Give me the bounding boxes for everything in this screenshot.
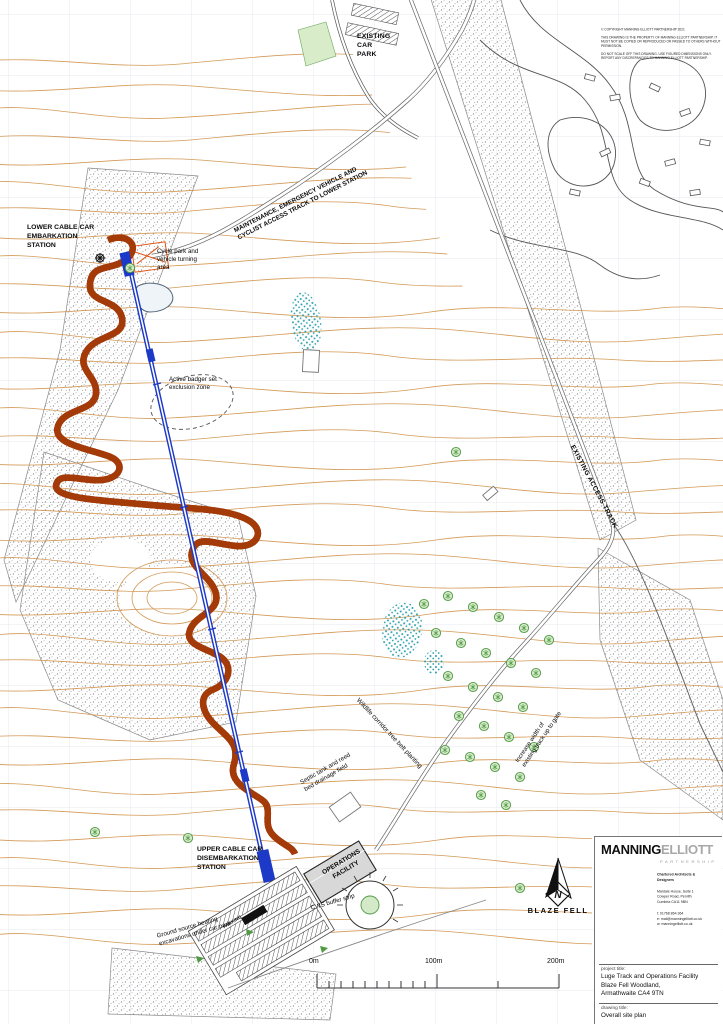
project-title: Luge Track and Operations Facility Blaze… bbox=[601, 973, 718, 999]
north-arrow: N bbox=[530, 856, 586, 908]
clearing bbox=[90, 538, 150, 582]
scale-bar-ticks bbox=[303, 970, 589, 992]
note-no-scale: Do not scale off this drawing. Use figur… bbox=[601, 52, 721, 61]
firm-name-elliott: ELLIOTT bbox=[661, 842, 713, 857]
svg-text:N: N bbox=[554, 890, 562, 901]
firm-details: Chartered Architects & Designers Mardale… bbox=[657, 867, 723, 932]
firm-logo: MANNINGELLIOTT bbox=[601, 841, 718, 859]
firm-contact: t: 01768 864 364 e: mail@manningelliott.… bbox=[657, 911, 723, 926]
note-copyright: © Copyright Manning Elliott Partnership … bbox=[601, 28, 721, 33]
note-property: This drawing is the property of Manning … bbox=[601, 36, 721, 50]
scale-two-hundred: 200m bbox=[547, 958, 565, 965]
lift-wheel-symbol bbox=[95, 253, 105, 263]
label-existing-car-park: EXISTING CAR PARK bbox=[357, 33, 390, 59]
firm-name-manning: MANNING bbox=[601, 842, 661, 857]
label-cycle-park: Cycle park and vehicle turning area bbox=[157, 248, 198, 272]
firm-address: Mardale House, Suite 1 Cowper Road, Penr… bbox=[657, 889, 723, 904]
firm-partnership: PARTNERSHIP bbox=[660, 859, 718, 864]
scale-hundred: 100m bbox=[425, 958, 443, 965]
drawing-sheet: EXISTING CAR PARK LOWER CABLE CAR EMBARK… bbox=[0, 0, 723, 1024]
label-lower-station: LOWER CABLE CAR EMBARKATION STATION bbox=[27, 224, 94, 250]
drawing-title-label: drawing title: bbox=[601, 1006, 718, 1011]
drawing-title: Overall site plan bbox=[601, 1012, 718, 1021]
scale-bar: 0m 100m 200m bbox=[303, 958, 589, 992]
label-upper-station: UPPER CABLE CAR DISEMBARKATION STATION bbox=[197, 846, 262, 872]
label-badger-zone: Active badger set exclusion zone bbox=[169, 376, 217, 392]
north-arrow-icon: N bbox=[530, 856, 586, 908]
scale-zero: 0m bbox=[309, 958, 319, 965]
firm-description: Chartered Architects & Designers bbox=[657, 872, 723, 882]
project-title-label: project title: bbox=[601, 967, 718, 972]
title-block: MANNINGELLIOTT PARTNERSHIP Chartered Arc… bbox=[594, 836, 722, 1024]
sheet-notes: © Copyright Manning Elliott Partnership … bbox=[601, 28, 721, 64]
label-blaze-fell: BLAZE FELL bbox=[518, 906, 598, 916]
